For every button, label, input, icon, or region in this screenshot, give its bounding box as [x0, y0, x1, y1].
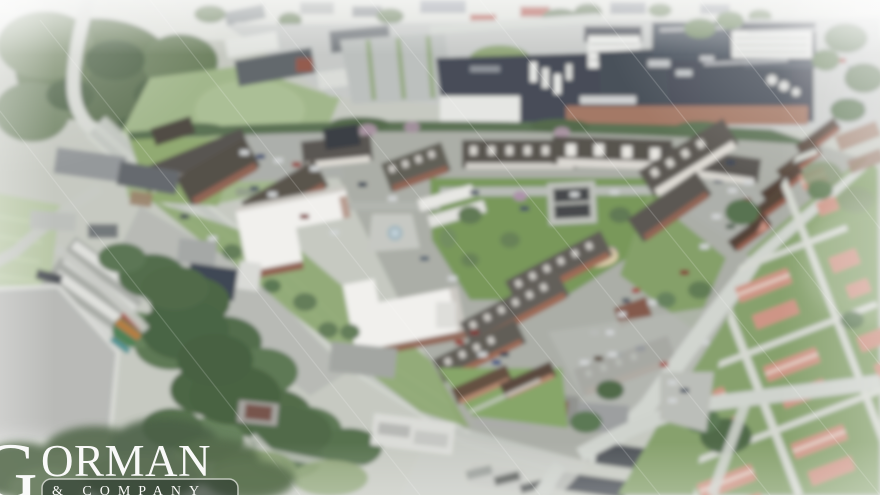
- svg-text:& COMPANY: & COMPANY: [52, 484, 207, 495]
- svg-text:G: G: [0, 428, 38, 495]
